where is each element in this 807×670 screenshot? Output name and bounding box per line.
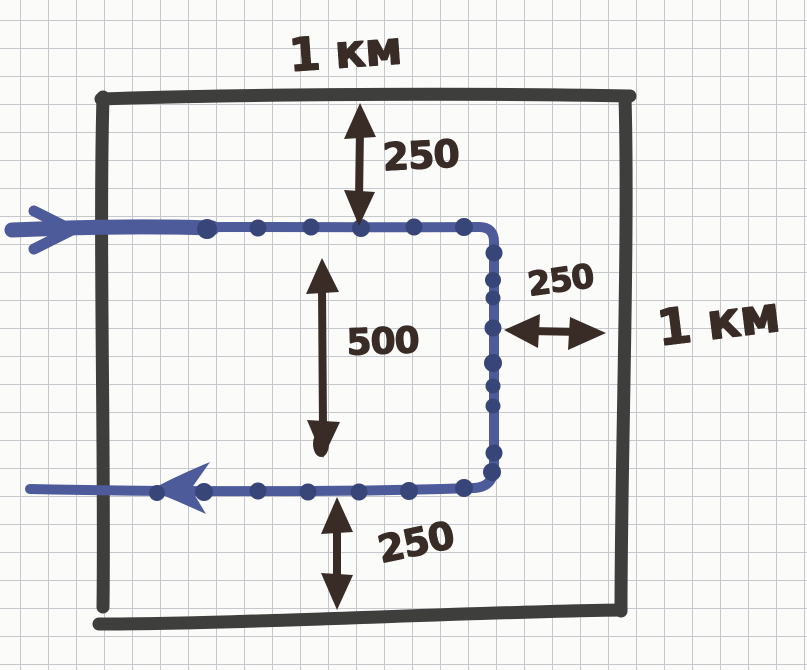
label-top-offset: 250	[381, 131, 460, 179]
graph-paper: 1 км 250 500 250 1 км 250	[0, 0, 807, 670]
outer-square-top-edge	[101, 94, 630, 99]
label-outer-width: 1 км	[286, 20, 402, 82]
dimension-inner-height	[306, 258, 340, 458]
dimension-right-offset	[504, 314, 606, 350]
route-line-overdraw	[12, 227, 212, 230]
dimension-top-offset	[344, 103, 376, 226]
label-inner-height: 500	[345, 320, 419, 363]
route-line	[12, 227, 494, 491]
outer-square-bottom-edge	[99, 610, 620, 624]
dimension-bottom-offset	[321, 497, 353, 610]
outer-square-right-edge	[621, 97, 626, 611]
outer-square-left-edge	[102, 97, 104, 607]
route	[12, 211, 503, 514]
